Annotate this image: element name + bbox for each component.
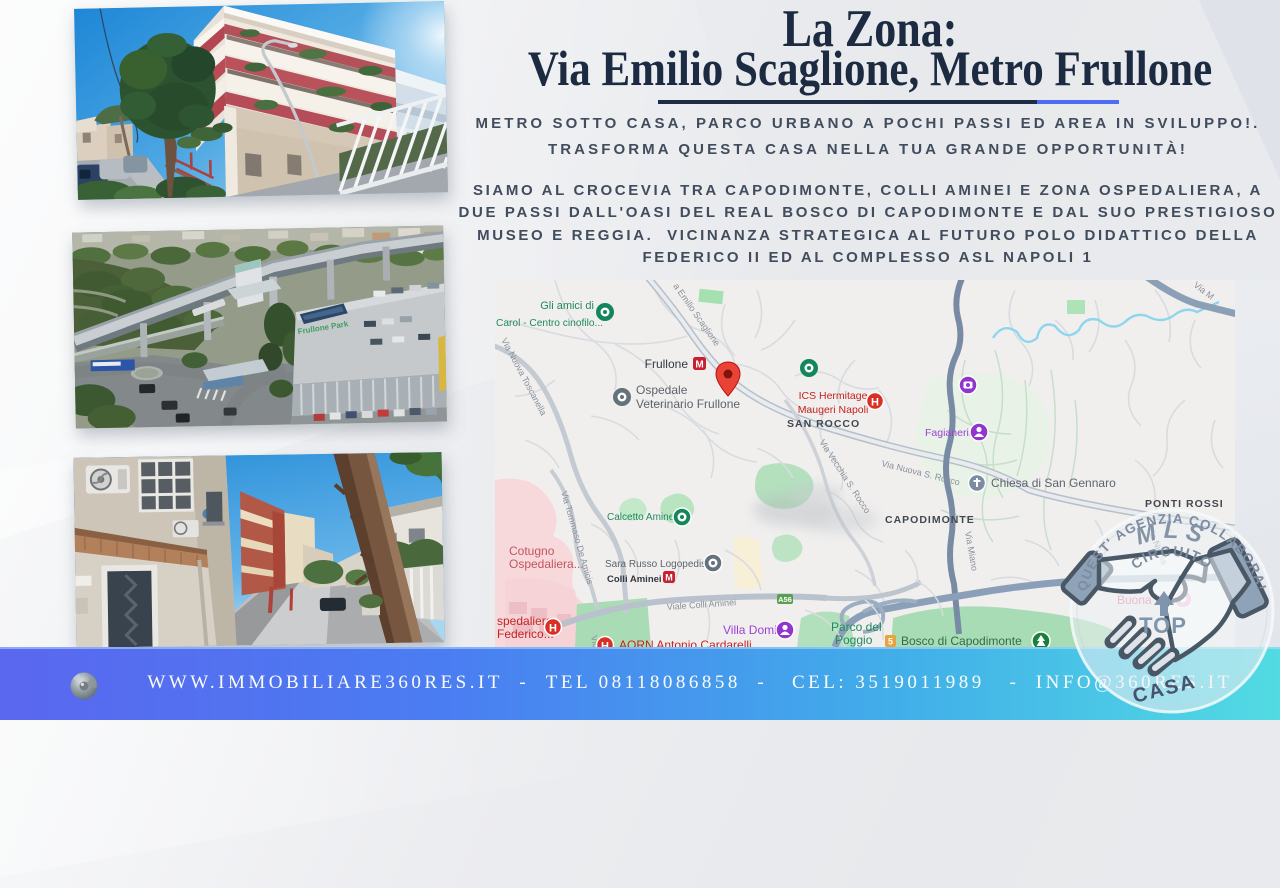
svg-text:Villa Domi: Villa Domi: [723, 623, 777, 637]
svg-text:Bosco di Capodimonte: Bosco di Capodimonte: [901, 634, 1022, 647]
svg-text:Gli amici di: Gli amici di: [540, 300, 594, 312]
svg-text:Ospedale: Ospedale: [636, 383, 688, 397]
svg-text:SAN ROCCO: SAN ROCCO: [787, 418, 860, 430]
svg-text:H: H: [871, 397, 879, 409]
svg-text:Veterinario Frullone: Veterinario Frullone: [636, 397, 740, 411]
svg-text:Carol - Centro cinofilo...: Carol - Centro cinofilo...: [496, 318, 603, 329]
svg-text:Via M: Via M: [1192, 280, 1216, 302]
svg-text:A56: A56: [778, 595, 792, 604]
svg-text:M: M: [665, 573, 673, 583]
svg-text:Ospedaliera...: Ospedaliera...: [509, 557, 584, 571]
svg-text:H: H: [549, 623, 557, 635]
svg-text:Fagianeria: Fagianeria: [925, 427, 975, 439]
svg-text:Via Nuova Toscanella: Via Nuova Toscanella: [499, 336, 548, 417]
svg-text:M: M: [695, 360, 703, 371]
svg-text:CAPODIMONTE: CAPODIMONTE: [885, 514, 975, 526]
svg-text:Colli Aminei: Colli Aminei: [607, 574, 662, 585]
svg-text:Calcetto Aminei: Calcetto Aminei: [607, 512, 676, 523]
svg-text:TOP: TOP: [1139, 613, 1187, 638]
svg-text:Frullone: Frullone: [645, 357, 689, 371]
svg-text:Poggio: Poggio: [835, 633, 873, 647]
svg-text:5: 5: [888, 637, 893, 647]
svg-text:ICS Hermitage: ICS Hermitage: [799, 390, 868, 402]
svg-text:AORN Antonio Cardarelli: AORN Antonio Cardarelli: [619, 638, 752, 647]
svg-text:Maugeri Napoli: Maugeri Napoli: [798, 404, 869, 416]
svg-text:Via Miano: Via Miano: [963, 531, 980, 572]
svg-text:Parco del: Parco del: [831, 620, 882, 634]
svg-text:Cotugno: Cotugno: [509, 544, 555, 558]
svg-text:Sara Russo Logopedista: Sara Russo Logopedista: [605, 559, 715, 570]
svg-text:Chiesa di San Gennaro: Chiesa di San Gennaro: [991, 476, 1116, 490]
